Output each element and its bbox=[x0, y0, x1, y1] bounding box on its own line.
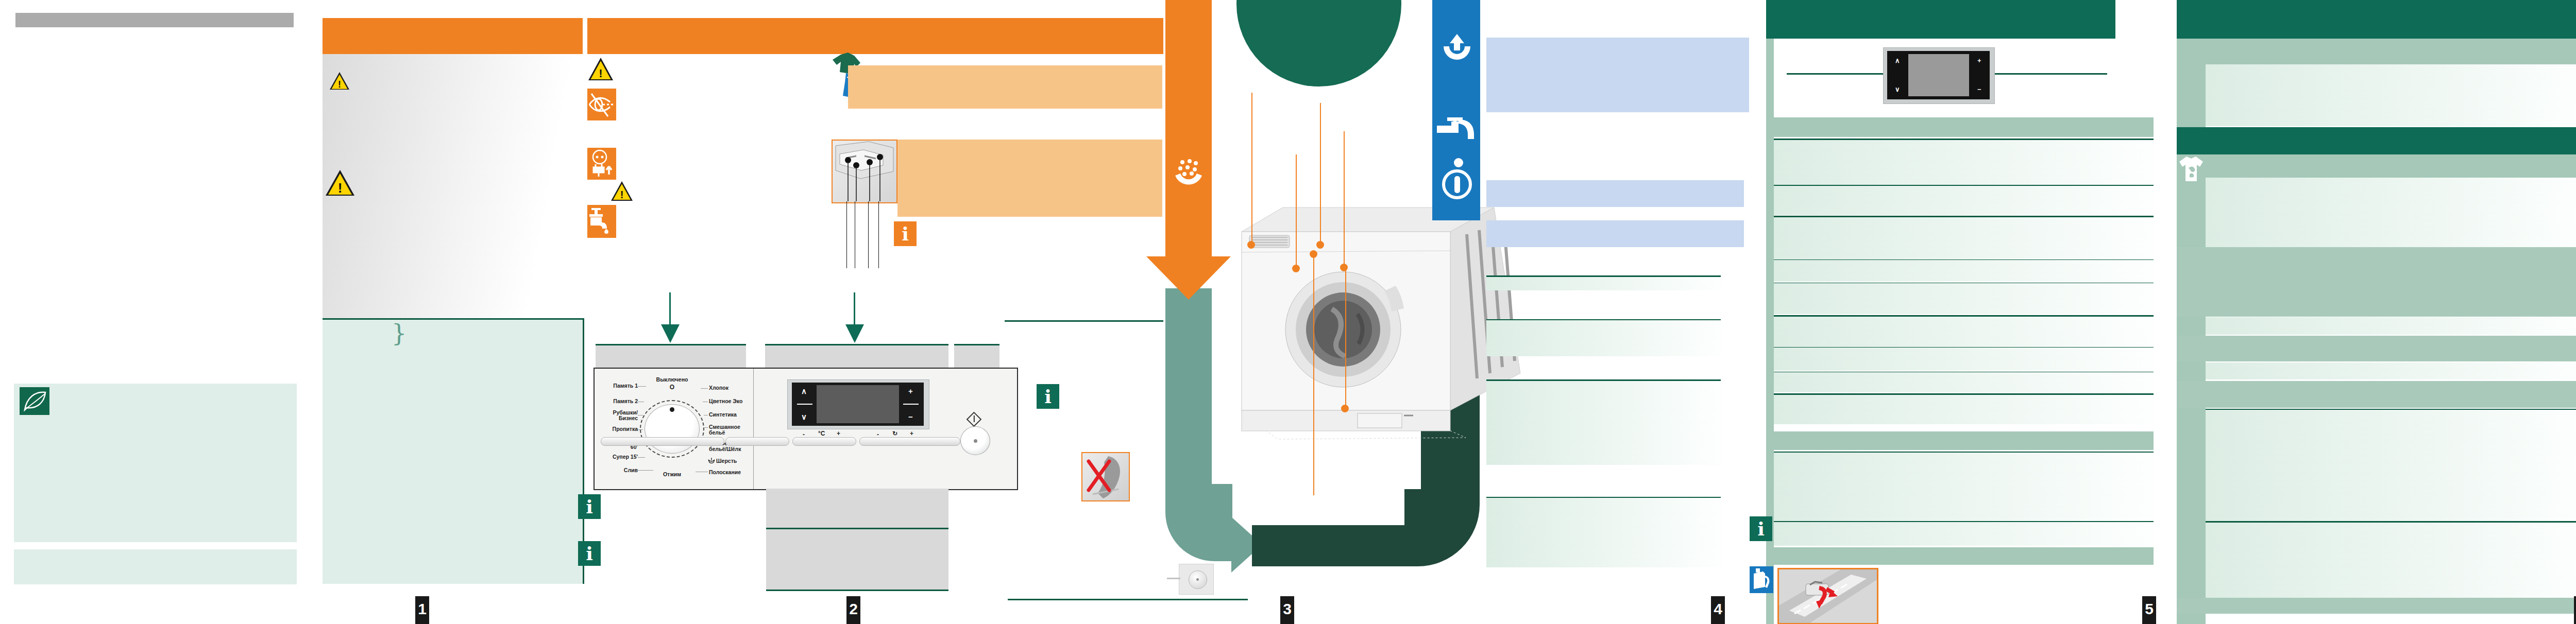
up-button: ∧ bbox=[801, 387, 807, 395]
page-tab-5: 5 bbox=[2142, 596, 2156, 624]
program-label: Рубашки/ Бизнес bbox=[599, 410, 638, 422]
subheader-band bbox=[2177, 39, 2576, 64]
table-row bbox=[1774, 185, 2154, 215]
callout-line bbox=[855, 201, 855, 268]
down-arrow-icon bbox=[661, 324, 680, 343]
drawer-insert-image bbox=[1777, 568, 1878, 624]
temp-plus: + bbox=[837, 430, 840, 437]
program-label: Пропитка bbox=[599, 426, 638, 432]
info-icon: i bbox=[894, 221, 917, 246]
table-row bbox=[1774, 315, 2154, 347]
program-label: Хлопок bbox=[709, 385, 752, 391]
callout-line-orange bbox=[1344, 131, 1345, 266]
detergent-jug-icon bbox=[1750, 566, 1773, 593]
page-tab-3: 3 bbox=[1280, 596, 1294, 624]
teal-arrow-corner bbox=[1165, 484, 1232, 561]
button-bar bbox=[601, 437, 724, 446]
sage-block bbox=[2177, 381, 2576, 408]
curly-brace: } bbox=[392, 319, 406, 347]
note-box bbox=[1486, 180, 1744, 207]
up-button: ∧ bbox=[1895, 57, 1900, 64]
minus-button: − bbox=[908, 413, 913, 421]
panel6-margin bbox=[2177, 39, 2206, 624]
button-bar bbox=[725, 437, 789, 446]
power-plug-icon bbox=[587, 148, 616, 180]
green-circle-decoration bbox=[1236, 0, 1401, 86]
callout-dot bbox=[1247, 241, 1255, 249]
table-row bbox=[1774, 259, 2154, 282]
program-label: Смешанное бельё bbox=[709, 424, 752, 436]
info-circle-icon bbox=[1442, 158, 1472, 203]
label-box bbox=[596, 344, 746, 369]
warning-triangle-icon: ! bbox=[611, 181, 633, 201]
callout-dot bbox=[1340, 264, 1348, 271]
page-tab-2: 2 bbox=[846, 596, 860, 624]
note-box bbox=[1486, 38, 1749, 112]
content-row bbox=[2206, 317, 2576, 335]
plus-button: + bbox=[908, 387, 913, 395]
panel2-header bbox=[587, 18, 1163, 54]
warning-triangle-icon: ! bbox=[326, 170, 354, 196]
temp-unit: °C bbox=[818, 430, 825, 437]
section-divider bbox=[1005, 320, 1163, 322]
orange-arrow-shaft bbox=[1165, 0, 1212, 260]
step-highlight-box bbox=[848, 65, 1162, 109]
table-row bbox=[1774, 521, 2154, 546]
table-row bbox=[1486, 275, 1721, 290]
top-left-gray-bar bbox=[15, 13, 294, 27]
program-label: Супер 15' bbox=[599, 454, 638, 460]
dark-arrow-band bbox=[1252, 525, 1417, 566]
subheader-band bbox=[1774, 547, 2154, 565]
display-screen bbox=[817, 385, 899, 423]
info-icon: i bbox=[578, 494, 601, 519]
content-row bbox=[2206, 362, 2576, 379]
table-row bbox=[1774, 372, 2154, 392]
info-icon: i bbox=[1750, 516, 1772, 541]
plus-button: + bbox=[1977, 57, 1981, 64]
start-button-icon bbox=[967, 412, 982, 427]
callout-line-orange bbox=[1320, 103, 1321, 245]
eco-note-box bbox=[14, 384, 297, 542]
eco-note-box-2 bbox=[14, 549, 297, 584]
sage-block bbox=[2177, 336, 2576, 361]
program-label: Полоскание bbox=[709, 470, 752, 475]
down-button: ∨ bbox=[1895, 86, 1900, 93]
dial-off-label: Выключено bbox=[640, 377, 704, 383]
content-block bbox=[2206, 521, 2576, 598]
callout-line-orange bbox=[1251, 93, 1252, 245]
program-label: Память 1 bbox=[599, 383, 638, 389]
spin-plus: + bbox=[910, 430, 913, 437]
panel6-section-header bbox=[2177, 127, 2576, 154]
dial-spin-label: Отжим bbox=[645, 472, 699, 477]
no-solvent-image bbox=[1081, 452, 1130, 501]
table-row bbox=[1774, 138, 2154, 185]
water-tap-icon bbox=[1436, 116, 1475, 147]
panel5-header bbox=[1766, 0, 2115, 39]
callout-line bbox=[846, 201, 847, 268]
panel1-gray-gradient bbox=[323, 54, 583, 319]
dial-pointer bbox=[670, 407, 674, 412]
info-icon: i bbox=[1037, 384, 1059, 409]
program-label: Слив bbox=[599, 467, 638, 473]
divider bbox=[766, 528, 948, 529]
program-label: Цветное Эко bbox=[709, 398, 752, 404]
pointer-line bbox=[1787, 73, 1885, 75]
teal-arrow-shaft bbox=[1165, 288, 1212, 510]
callout-line-orange bbox=[1296, 154, 1297, 269]
table-row bbox=[1774, 452, 2154, 521]
table-row bbox=[1774, 347, 2154, 371]
table-row bbox=[1774, 216, 2154, 259]
content-block bbox=[2206, 409, 2576, 521]
control-panel-illustration: Выключено O Память 1 Память 2 Рубашки/ Б… bbox=[594, 368, 1018, 490]
supervision-eye-icon bbox=[587, 89, 616, 120]
callout-line bbox=[868, 201, 869, 268]
pointer-line bbox=[1993, 73, 2107, 75]
program-label: Память 2 bbox=[599, 398, 638, 404]
page-tab-1: 1 bbox=[415, 596, 429, 624]
callout-dot bbox=[1310, 250, 1317, 258]
content-block bbox=[2206, 64, 2576, 126]
pointer-line bbox=[854, 292, 855, 324]
table-row bbox=[1486, 497, 1721, 567]
divider bbox=[766, 590, 948, 591]
sage-block bbox=[2177, 247, 2576, 317]
display-widget-image: ∧ ∨ + − bbox=[1883, 47, 1995, 104]
program-dial bbox=[640, 400, 704, 458]
label-box bbox=[954, 344, 999, 369]
down-arrow-icon bbox=[845, 324, 864, 343]
note-box bbox=[1486, 220, 1744, 247]
spin-symbol: ↻ bbox=[892, 430, 897, 437]
table-row bbox=[1774, 393, 2154, 424]
socket-image bbox=[1179, 564, 1214, 595]
manual-spread: ! ! } 1 ! ! i bbox=[0, 0, 2576, 624]
dark-arrow-corner bbox=[1404, 489, 1480, 566]
button-bar bbox=[859, 437, 960, 446]
label-box bbox=[765, 344, 948, 369]
panel-divider bbox=[753, 369, 754, 489]
sage-block bbox=[2177, 598, 2576, 614]
panel6-header bbox=[2177, 0, 2576, 39]
table-row bbox=[1486, 379, 1721, 465]
info-icon: i bbox=[578, 541, 601, 566]
water-tap-icon bbox=[587, 205, 616, 238]
detergent-drawer-image bbox=[832, 140, 897, 203]
display-module: ∧ ∨ + − bbox=[787, 379, 929, 429]
laundry-shirt-icon bbox=[2178, 155, 2204, 182]
step-highlight-box bbox=[897, 140, 1162, 217]
pointer-line bbox=[669, 292, 671, 324]
callout-line-orange bbox=[1345, 270, 1346, 408]
page-tab-6: 6 bbox=[2574, 596, 2576, 624]
table-row bbox=[1774, 283, 2154, 314]
leaf-icon bbox=[20, 387, 49, 415]
program-label: Синтетика bbox=[709, 412, 752, 418]
subheader-band bbox=[2177, 154, 2576, 178]
panel1-green-box bbox=[323, 318, 584, 584]
wool-handwash-icon bbox=[708, 456, 715, 465]
warning-triangle-icon: ! bbox=[588, 58, 613, 80]
subheader-band bbox=[1774, 117, 2154, 137]
detergent-dots-icon bbox=[1171, 158, 1206, 192]
drawer-block bbox=[766, 489, 948, 591]
washing-machine-illustration bbox=[1234, 203, 1530, 445]
warning-triangle-icon: ! bbox=[330, 72, 349, 90]
button-bar bbox=[792, 437, 856, 446]
panel1-header bbox=[323, 18, 583, 54]
callout-dot bbox=[1316, 241, 1324, 249]
divider bbox=[1008, 599, 1248, 600]
program-knob bbox=[960, 426, 990, 455]
callout-line bbox=[878, 201, 879, 268]
content-block bbox=[2206, 178, 2576, 247]
minus-button: − bbox=[1977, 86, 1981, 93]
callout-dot bbox=[1292, 265, 1300, 272]
callout-dot bbox=[1341, 405, 1349, 412]
table-row bbox=[1486, 319, 1721, 356]
orange-arrow-head bbox=[1146, 256, 1231, 300]
down-button: ∨ bbox=[801, 413, 807, 421]
program-label-wool: Шерсть bbox=[716, 458, 759, 464]
dial-off-symbol: O bbox=[640, 384, 704, 391]
drum-refresh-icon bbox=[1440, 33, 1473, 67]
callout-line-orange bbox=[1313, 257, 1314, 495]
page-tab-4: 4 bbox=[1711, 596, 1725, 624]
subheader-band bbox=[1774, 431, 2154, 450]
